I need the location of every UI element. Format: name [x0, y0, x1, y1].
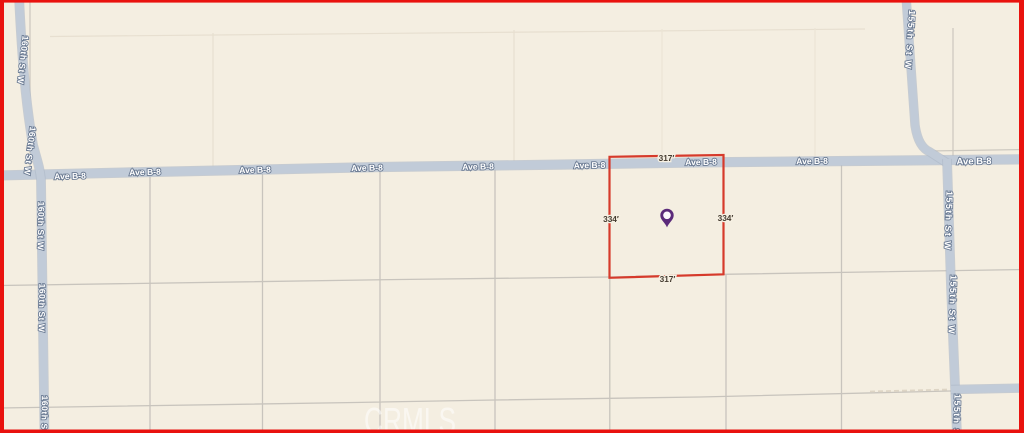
svg-text:160th St W: 160th St W	[39, 395, 50, 433]
svg-text:Ave B-8: Ave B-8	[239, 164, 271, 175]
svg-text:Ave B-8: Ave B-8	[462, 161, 494, 172]
svg-text:317′: 317′	[659, 153, 675, 163]
svg-text:334′: 334′	[718, 213, 734, 223]
svg-text:Ave B-8: Ave B-8	[956, 156, 991, 167]
svg-text:317′: 317′	[660, 274, 676, 284]
svg-text:CRMLS: CRMLS	[364, 400, 456, 433]
svg-text:Ave B-8: Ave B-8	[351, 162, 383, 173]
svg-text:Ave B-8: Ave B-8	[796, 156, 828, 166]
svg-text:155th St W: 155th St W	[946, 275, 958, 335]
svg-text:160th St W: 160th St W	[36, 201, 47, 250]
svg-text:160th St W: 160th St W	[37, 283, 48, 332]
svg-text:155th St W: 155th St W	[942, 191, 954, 251]
svg-text:Ave B-8: Ave B-8	[129, 167, 161, 178]
svg-text:334′: 334′	[603, 214, 619, 224]
svg-text:Ave B-8: Ave B-8	[54, 171, 86, 182]
svg-text:Ave B-8: Ave B-8	[685, 157, 717, 168]
svg-text:Ave B-8: Ave B-8	[574, 160, 606, 171]
